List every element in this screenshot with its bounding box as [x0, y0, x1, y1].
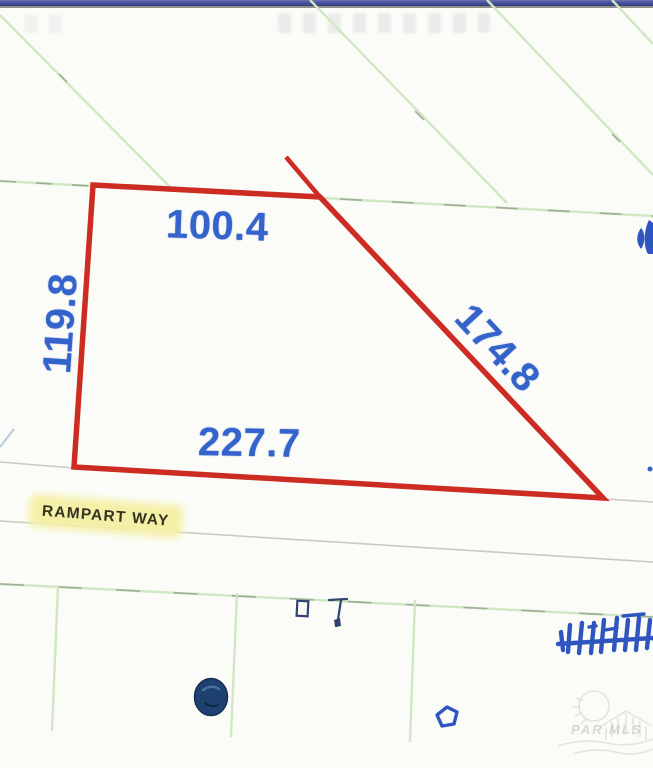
dimension-label-top: 100.4: [165, 202, 269, 251]
annotation-marks: [0, 220, 653, 726]
mls-watermark-text: PAR MLS: [571, 722, 643, 737]
filled-circle-mark: [195, 679, 228, 716]
dimension-label-bottom: 227.7: [198, 420, 301, 467]
lower-lot-lines: [0, 584, 653, 742]
sun-icon: [579, 691, 609, 721]
tiny-dot-mark: [648, 467, 653, 472]
scribble-mark: [558, 614, 653, 653]
dimension-label-left: 119.8: [34, 257, 88, 390]
plat-map-drawing: [0, 0, 653, 768]
small-square-mark: [297, 601, 309, 617]
waves-icon: [558, 739, 653, 754]
edge-tick-mark: [0, 429, 14, 447]
edge-blob-icon: [637, 220, 653, 254]
pentagon-mark: [437, 707, 457, 726]
parcel-corner-tick: [286, 157, 320, 197]
flag-mark: [329, 599, 347, 627]
upper-lot-lines: [0, 0, 653, 203]
map-canvas[interactable]: 100.4 119.8 174.8 227.7 RAMPART WAY PAR …: [0, 0, 653, 768]
parcel-outline: [74, 185, 603, 498]
